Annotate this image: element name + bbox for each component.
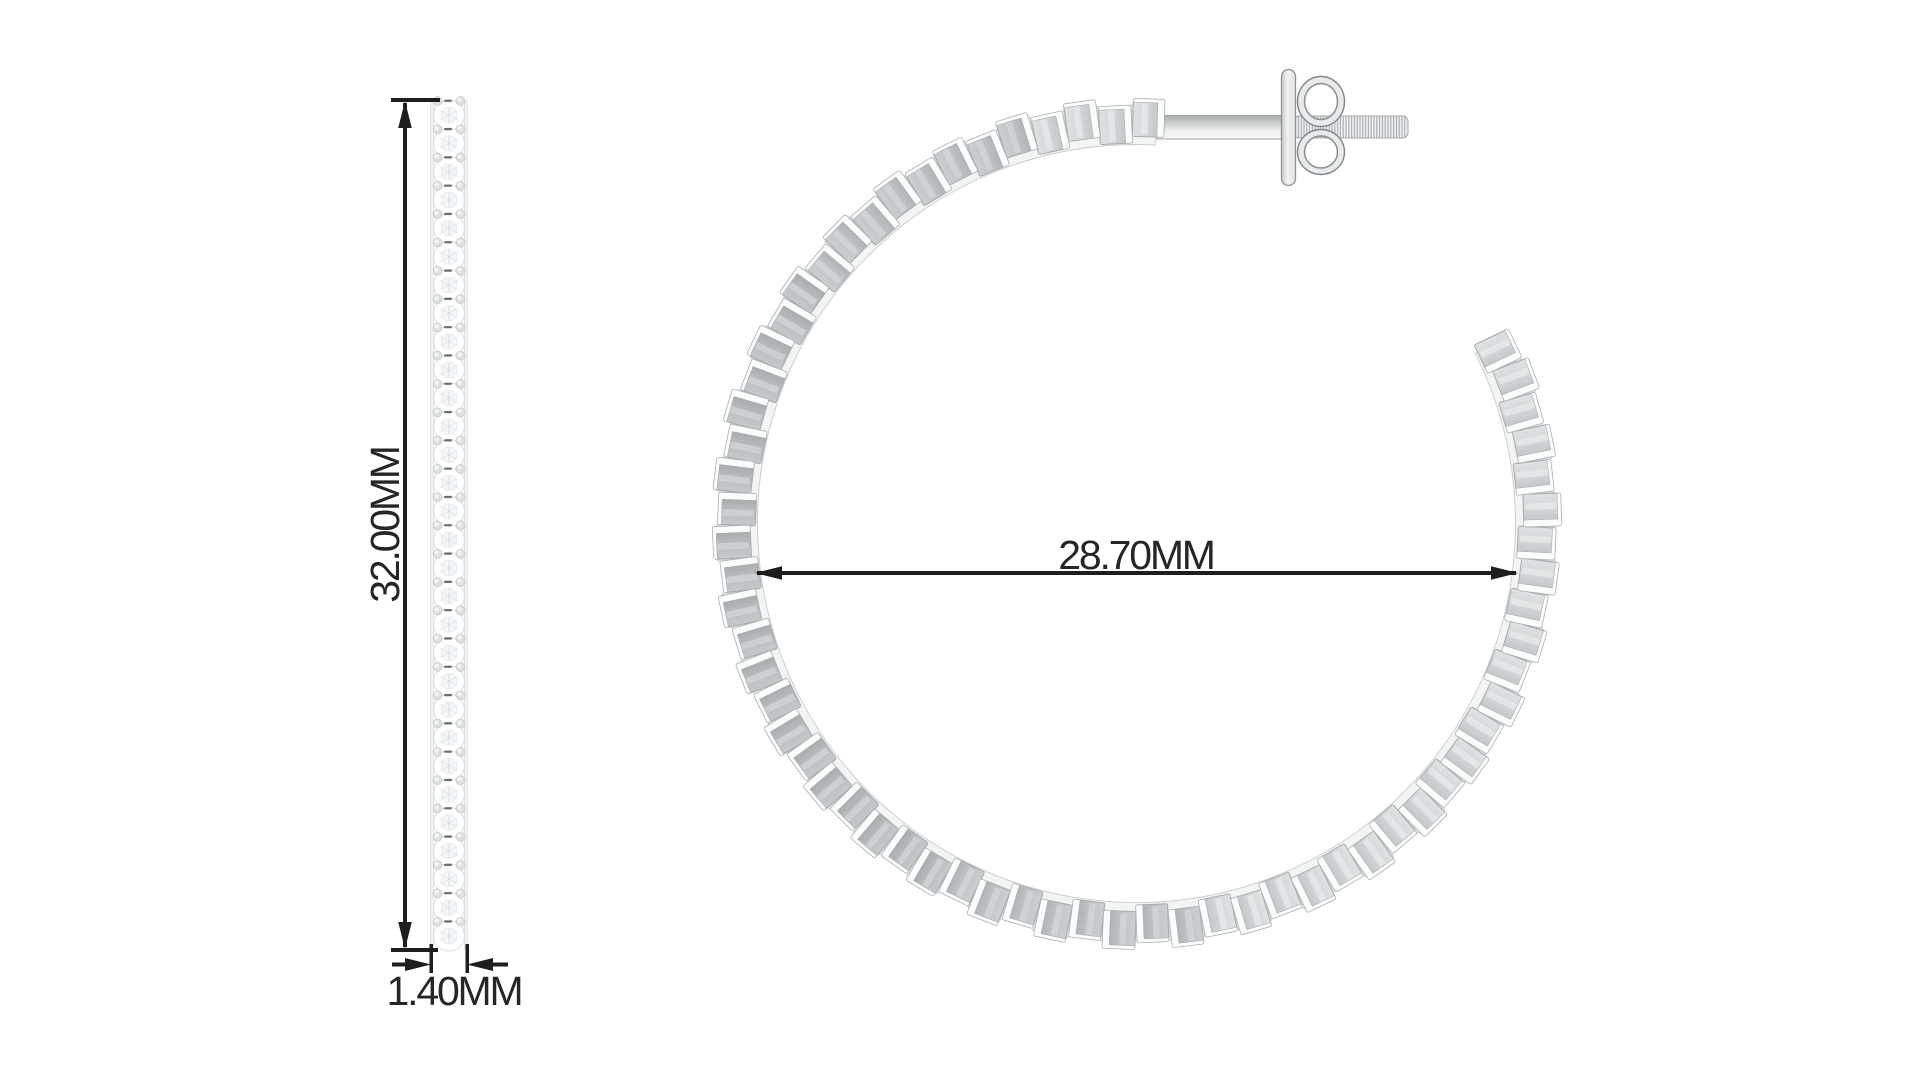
svg-text:32.00MM: 32.00MM <box>362 447 408 603</box>
svg-text:28.70MM: 28.70MM <box>1058 532 1214 578</box>
svg-text:1.40MM: 1.40MM <box>387 968 522 1014</box>
